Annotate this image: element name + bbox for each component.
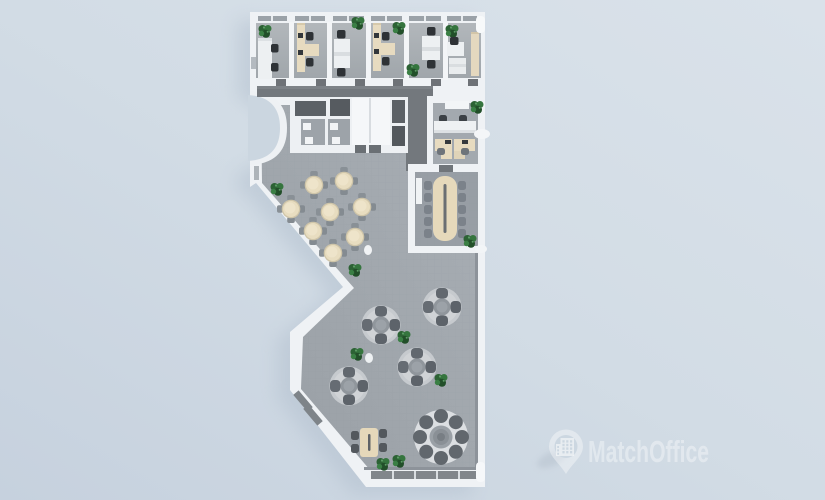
- svg-text:MatchOffice: MatchOffice: [588, 434, 709, 469]
